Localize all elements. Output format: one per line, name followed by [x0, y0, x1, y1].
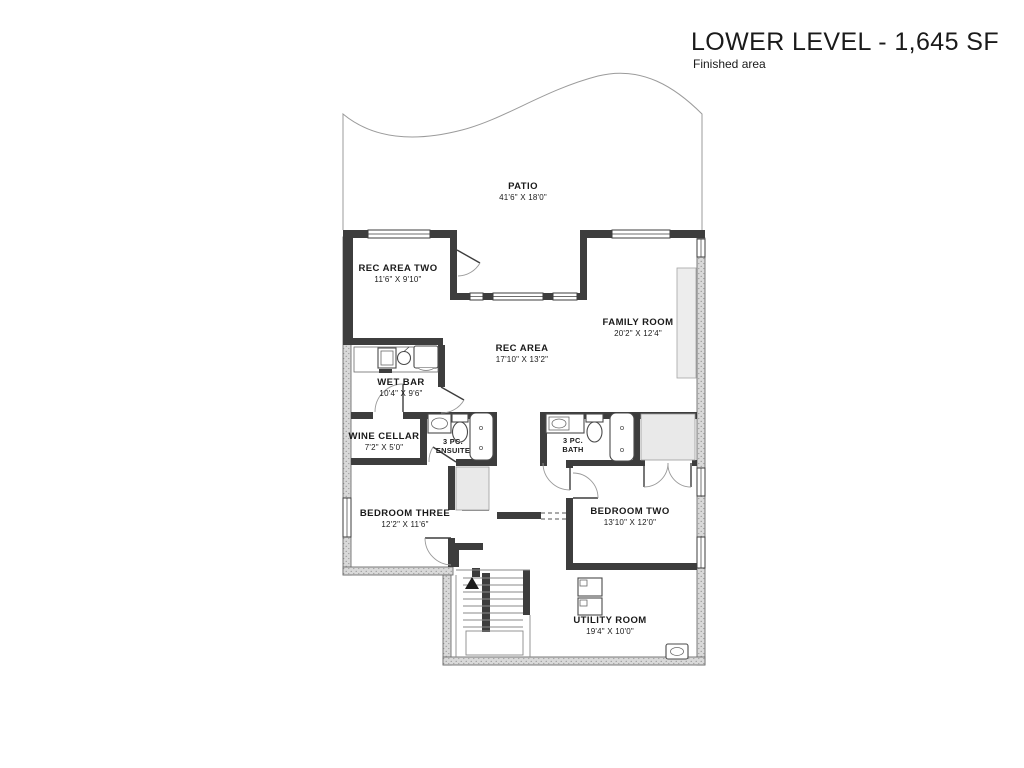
family-room-builtin — [677, 268, 696, 378]
room-label-bath: 3 PC. BATH — [562, 437, 583, 455]
room-label-rec-area-two: REC AREA TWO 11'6" X 9'10" — [358, 263, 437, 286]
room-label-ensuite: 3 PC. ENSUITE — [436, 438, 470, 456]
room-name: UTILITY ROOM — [573, 615, 646, 627]
ensuite-shower-icon — [470, 413, 493, 460]
room-label-utility-room: UTILITY ROOM 19'4" X 10'0" — [573, 615, 646, 638]
ensuite-vanity-icon — [428, 414, 451, 433]
room-name: BATH — [562, 446, 583, 455]
room-name: BEDROOM TWO — [590, 506, 669, 518]
window — [697, 239, 705, 257]
room-name: WINE CELLAR — [349, 431, 420, 443]
floor-plan-page: LOWER LEVEL - 1,645 SF Finished area — [0, 0, 1024, 768]
stairs-direction-arrow — [465, 577, 479, 589]
door-swing — [425, 538, 451, 565]
bedroom-two-closet — [641, 414, 695, 460]
wet-bar-counter — [354, 346, 438, 373]
room-dims: 41'6" X 18'0" — [499, 193, 547, 203]
room-dims: 19'4" X 10'0" — [573, 627, 646, 637]
window — [553, 293, 577, 300]
bar-fridge-icon — [414, 346, 438, 370]
door-swing — [441, 387, 464, 413]
room-dims: 13'10" X 12'0" — [590, 518, 669, 528]
room-name: WET BAR — [377, 377, 424, 389]
bedroom-three-closet — [456, 467, 489, 510]
room-name: ENSUITE — [436, 447, 470, 456]
floor-drain-icon — [666, 644, 688, 659]
washer-dryer-icon — [578, 578, 602, 615]
room-dims: 20'2" X 12'4" — [603, 329, 674, 339]
wet-bar-appliance-label — [379, 369, 392, 373]
room-name: PATIO — [499, 181, 547, 193]
floor-plan-drawing — [0, 0, 1024, 768]
room-label-patio: PATIO 41'6" X 18'0" — [499, 181, 547, 204]
window — [470, 293, 483, 300]
window — [493, 293, 543, 300]
room-dims: 11'6" X 9'10" — [358, 275, 437, 285]
bath-shower-icon — [610, 413, 634, 461]
room-name: FAMILY ROOM — [603, 317, 674, 329]
window — [697, 468, 705, 496]
room-label-bedroom-three: BEDROOM THREE 12'2" X 11'6" — [360, 508, 450, 531]
room-label-rec-area: REC AREA 17'10" X 13'2" — [496, 343, 549, 366]
room-label-family-room: FAMILY ROOM 20'2" X 12'4" — [603, 317, 674, 340]
bath-toilet-icon — [586, 414, 603, 442]
room-label-wet-bar: WET BAR 10'4" X 9'6" — [377, 377, 424, 400]
closet-double-doors — [644, 463, 691, 487]
window — [697, 537, 705, 568]
room-name: BEDROOM THREE — [360, 508, 450, 520]
patio-outline — [343, 73, 702, 230]
door-swing — [543, 463, 570, 490]
window — [343, 498, 351, 537]
room-dims: 17'10" X 13'2" — [496, 355, 549, 365]
room-dims: 12'2" X 11'6" — [360, 520, 450, 530]
cased-opening-dashed — [541, 513, 566, 519]
room-label-bedroom-two: BEDROOM TWO 13'10" X 12'0" — [590, 506, 669, 529]
window — [612, 230, 670, 238]
door-swing — [457, 250, 480, 276]
door-swing — [573, 473, 598, 498]
room-name: REC AREA — [496, 343, 549, 355]
room-dims: 7'2" X 5'0" — [349, 443, 420, 453]
window — [368, 230, 430, 238]
room-label-wine-cellar: WINE CELLAR 7'2" X 5'0" — [349, 431, 420, 454]
room-name: REC AREA TWO — [358, 263, 437, 275]
room-dims: 10'4" X 9'6" — [377, 389, 424, 399]
stairs — [456, 570, 530, 657]
bath-vanity-icon — [546, 414, 584, 433]
